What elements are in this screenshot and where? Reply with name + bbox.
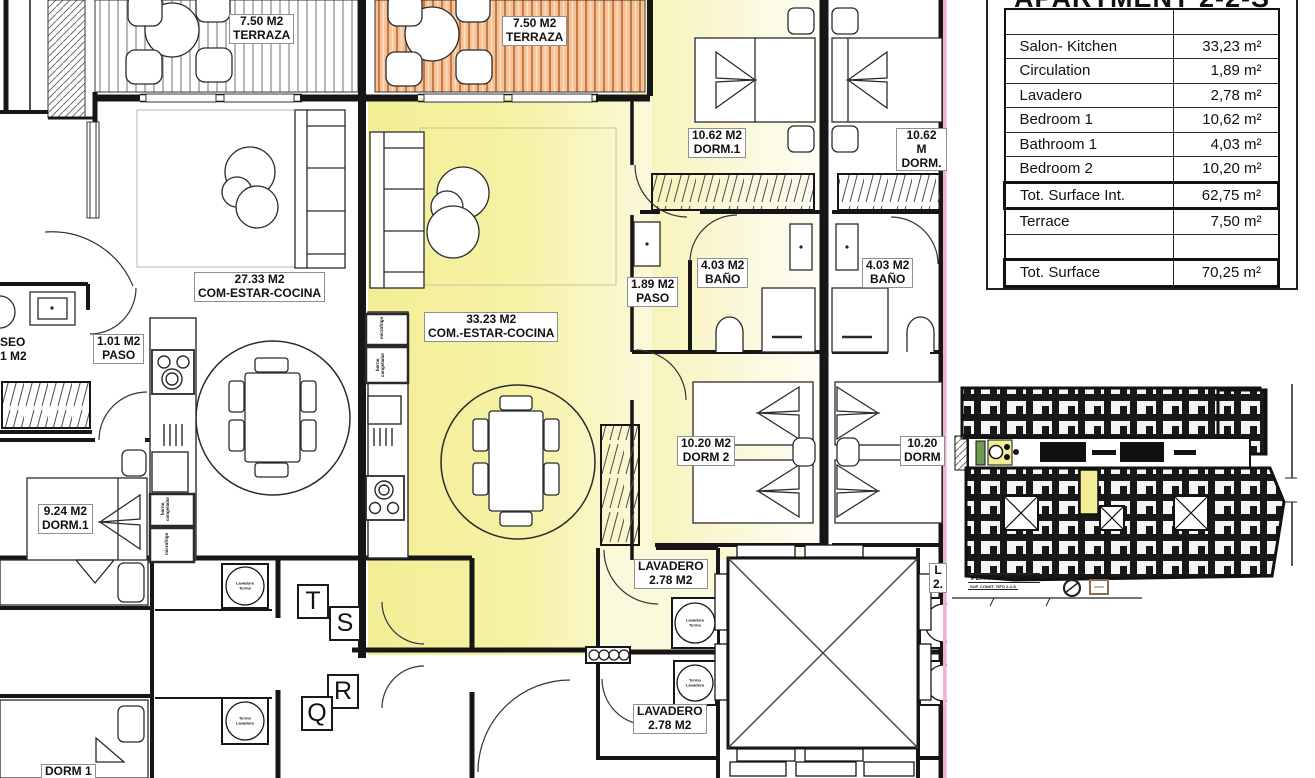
room-label: 27.33 M2 COM-ESTAR-COCINA — [194, 272, 325, 302]
room-label: microfrigo — [165, 530, 170, 558]
room-label: Lavadora Termo — [683, 618, 707, 627]
room-label: 33.23 M2 COM.-ESTAR-COCINA — [424, 312, 558, 342]
room-label: 4.03 M2 BAÑO — [697, 258, 748, 288]
room-label: SEO 1 M2 — [0, 336, 27, 364]
surface-table-row: Terrace 7,50 m² — [1005, 209, 1279, 235]
key-plan: PLANTA SEGUNDA SUP. CONST. TIPO 2-2-S — [952, 378, 1297, 630]
room-label: horno congelador — [376, 350, 386, 380]
surface-row-label: Lavadero — [1005, 83, 1174, 108]
room-label: 4.03 M2 BAÑO — [862, 258, 913, 288]
surface-table-row: Bathroom 1 4,03 m² — [1005, 132, 1279, 157]
surface-table: APARTMENT 2-2-S Salon- Kitchen 33,23 m² … — [986, 0, 1298, 290]
surface-row-label: Bedroom 1 — [1005, 108, 1174, 133]
surface-row-label — [1005, 234, 1174, 260]
key-plan-caption-sub: SUP. CONST. TIPO 2-2-S — [968, 584, 1018, 590]
floor-plan: 7.50 M2 TERRAZA7.50 M2 TERRAZA27.33 M2 C… — [0, 0, 947, 778]
room-label: 9.24 M2 DORM.1 — [38, 504, 93, 534]
surface-row-value: 10,20 m² — [1174, 157, 1279, 183]
room-label: T — [297, 584, 329, 619]
room-label: Lavadora Termo — [233, 581, 257, 590]
room-label: 1.01 M2 PASO — [93, 334, 144, 364]
room-label: 1.89 M2 PASO — [627, 277, 678, 307]
surface-row-value: 70,25 m² — [1174, 260, 1279, 287]
surface-table-row: Salon- Kitchen 33,23 m² — [1005, 34, 1279, 59]
surface-table-row: Bedroom 2 10,20 m² — [1005, 157, 1279, 183]
room-label: 10.20 M2 DORM 2 — [677, 436, 735, 466]
room-label: Termo Lavadora — [683, 678, 707, 687]
room-label: Q — [301, 696, 333, 731]
surface-row-label: Bathroom 1 — [1005, 132, 1174, 157]
room-label: LAVADERO 2.78 M2 — [633, 704, 707, 734]
room-label: 10.20 DORM — [900, 436, 945, 466]
floor-plan-sheet: 7.50 M2 TERRAZA7.50 M2 TERRAZA27.33 M2 C… — [0, 0, 1315, 778]
surface-table-row: Tot. Surface Int. 62,75 m² — [1005, 182, 1279, 209]
surface-table-grid: Salon- Kitchen 33,23 m² Circulation 1,89… — [1003, 8, 1280, 288]
plan-labels: 7.50 M2 TERRAZA7.50 M2 TERRAZA27.33 M2 C… — [0, 0, 947, 778]
surface-row-label: Tot. Surface Int. — [1005, 182, 1174, 209]
surface-row-label: Circulation — [1005, 59, 1174, 84]
surface-row-value: 10,62 m² — [1174, 108, 1279, 133]
room-label: 7.50 M2 TERRAZA — [502, 16, 567, 46]
surface-row-value: 2,78 m² — [1174, 83, 1279, 108]
key-plan-drawing — [952, 378, 1297, 630]
surface-table-row: Lavadero 2,78 m² — [1005, 83, 1279, 108]
surface-row-value — [1174, 234, 1279, 260]
room-label: L 2. — [929, 563, 947, 593]
room-label: microfrigo — [380, 314, 385, 342]
surface-table-row — [1005, 234, 1279, 260]
room-label: 10.62 M2 DORM.1 — [688, 128, 746, 158]
key-plan-caption: PLANTA SEGUNDA — [968, 573, 1040, 583]
surface-row-value: 33,23 m² — [1174, 34, 1279, 59]
room-label: DORM 1 — [41, 764, 96, 778]
room-label: LAVADERO 2.78 M2 — [634, 559, 708, 589]
surface-row-label — [1005, 9, 1174, 34]
surface-row-value: 62,75 m² — [1174, 182, 1279, 209]
room-label: horno congelador — [161, 494, 171, 524]
surface-row-label: Salon- Kitchen — [1005, 34, 1174, 59]
surface-row-value — [1174, 9, 1279, 34]
room-label: 7.50 M2 TERRAZA — [229, 14, 294, 44]
surface-row-label: Bedroom 2 — [1005, 157, 1174, 183]
surface-row-value: 1,89 m² — [1174, 59, 1279, 84]
room-label: S — [329, 606, 361, 641]
highlighted-unit-marker — [1080, 470, 1098, 514]
surface-row-value: 4,03 m² — [1174, 132, 1279, 157]
surface-table-row: Tot. Surface 70,25 m² — [1005, 260, 1279, 287]
room-label: Termo Lavadora — [233, 716, 257, 725]
surface-table-row: Bedroom 1 10,62 m² — [1005, 108, 1279, 133]
surface-table-row: Circulation 1,89 m² — [1005, 59, 1279, 84]
surface-row-label: Tot. Surface — [1005, 260, 1174, 287]
surface-row-label: Terrace — [1005, 209, 1174, 235]
room-label: 10.62 M DORM. — [896, 128, 947, 171]
surface-table-row — [1005, 9, 1279, 34]
surface-row-value: 7,50 m² — [1174, 209, 1279, 235]
